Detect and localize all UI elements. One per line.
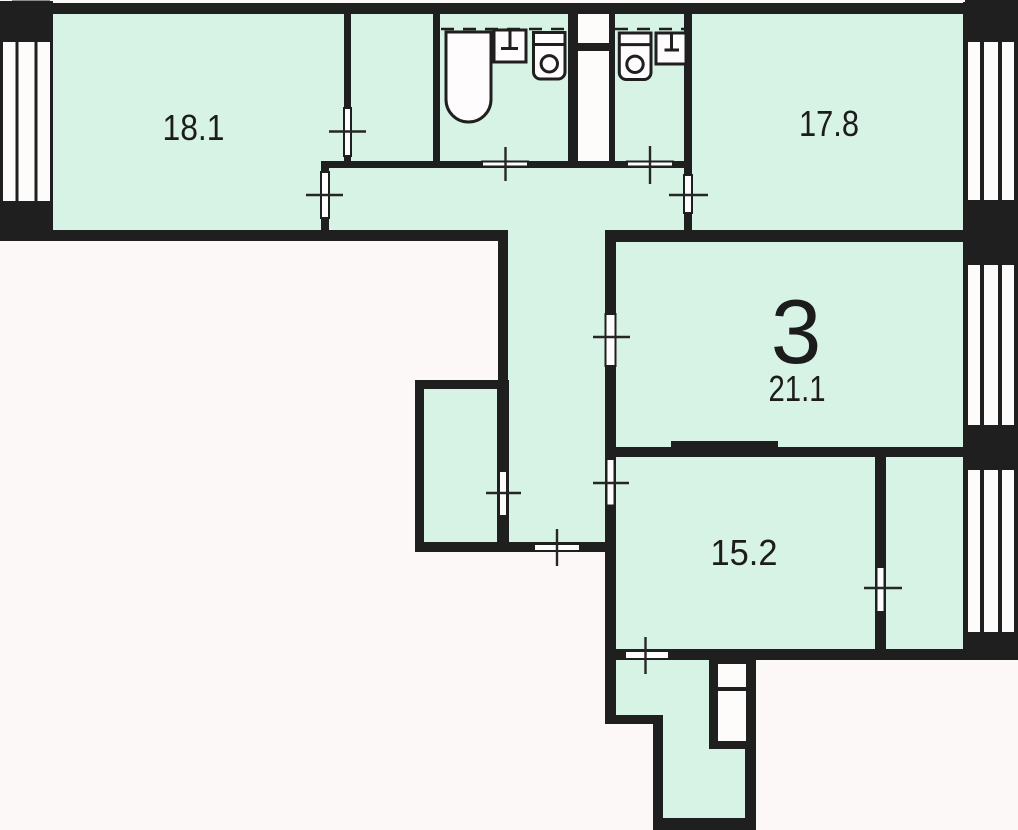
svg-text:18.1: 18.1 xyxy=(163,107,225,148)
svg-text:21.1: 21.1 xyxy=(769,368,826,409)
svg-text:17.8: 17.8 xyxy=(799,103,859,144)
svg-text:15.2: 15.2 xyxy=(711,532,778,573)
